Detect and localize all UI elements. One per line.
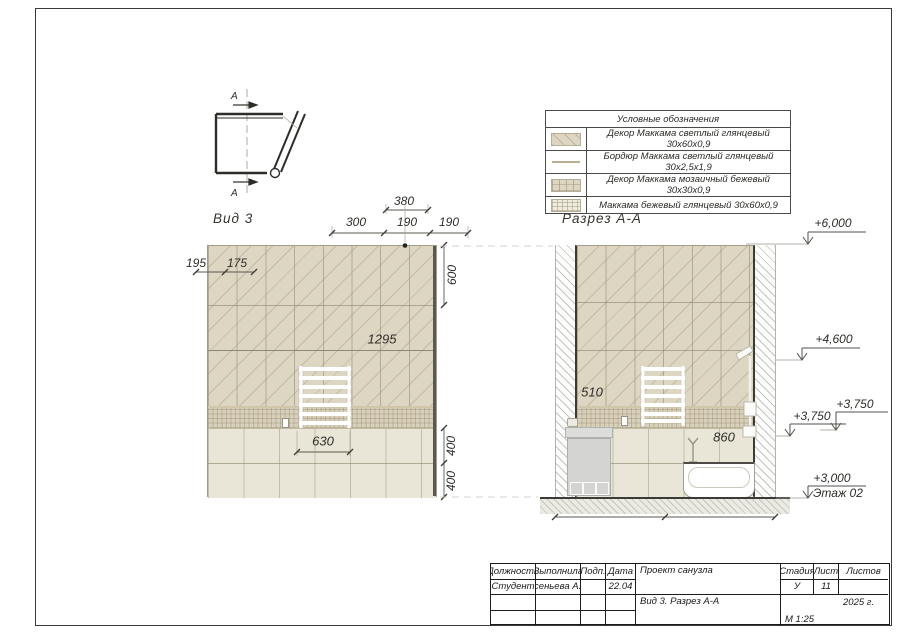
tb-header-role: Должность [491, 564, 536, 580]
tile-joint [577, 302, 753, 303]
dim-label: 600 [445, 265, 459, 285]
bath-faucet [684, 436, 704, 464]
tb-header-sheet: Лист [814, 564, 839, 580]
countertop [565, 427, 613, 438]
view3-elevation [207, 245, 437, 497]
dim-label: 195 [186, 256, 206, 270]
legend-swatch-decor-light [551, 133, 581, 146]
wall-edge [433, 246, 436, 496]
bathtub [683, 462, 755, 498]
legend-swatch-border [552, 157, 580, 168]
section-letter-bottom: А [230, 188, 238, 199]
machine-drawer-panel [570, 482, 609, 495]
level-label: +3,750 [793, 409, 830, 423]
socket-outlet [282, 418, 289, 428]
tb-sign [581, 580, 606, 596]
level-label: +4,600 [815, 332, 852, 346]
plan-sketch: А А [197, 85, 337, 200]
tile-joint [208, 463, 436, 464]
level-label: +3,000 [813, 471, 850, 485]
tb-stage: У [781, 580, 814, 596]
legend-swatch-field [551, 199, 581, 212]
dim-label: 400 [444, 436, 458, 456]
legend-swatch-mosaic [551, 179, 581, 192]
tb-header-sign: Подп. [581, 564, 606, 580]
tile-joint [208, 305, 436, 306]
tb-scale: М 1:25 [785, 614, 814, 625]
dim-label: 175 [227, 256, 247, 270]
tb-header-done-by: Выполнила [536, 564, 581, 580]
tb-project: Проект санузла [636, 564, 781, 595]
tile-joint-1295 [208, 350, 436, 351]
bathtub-rim [688, 467, 750, 488]
socket-outlet [621, 416, 628, 426]
section-title: Разрез А-А [562, 211, 642, 226]
tb-header-sheets: Листов [839, 564, 888, 580]
dim-label: 400 [444, 471, 458, 491]
legend-table: Условные обозначения Декор Маккама светл… [545, 110, 791, 214]
shower-mixer [744, 402, 756, 416]
counter-item [567, 418, 578, 427]
section-letter-top: А [230, 91, 238, 102]
tb-role: Студент [491, 580, 536, 596]
shower-spout [743, 426, 756, 437]
tb-year: 2025 г. [843, 597, 874, 608]
tb-sheets [839, 580, 888, 596]
dim-label: 300 [346, 215, 366, 229]
view3-title: Вид 3 [213, 211, 253, 226]
tb-header-stage: Стадия [781, 564, 814, 580]
drawing-sheet: А А Условные обозначения Декор Маккама с… [0, 0, 900, 633]
floor-slab [540, 497, 790, 514]
legend-title: Условные обозначения [546, 111, 791, 128]
section-wall-right [755, 245, 776, 498]
title-block: Должность Выполнила Подп. Дата Студент А… [490, 563, 890, 625]
tb-sheet: 11 [814, 580, 839, 596]
dim-label: 190 [439, 215, 459, 229]
tb-date: 22.04 [606, 580, 636, 596]
legend-label: Декор Маккама мозаичный бежевый 30х30х0,… [587, 174, 791, 197]
tb-header-date: Дата [606, 564, 636, 580]
legend-row: Декор Маккама мозаичный бежевый 30х30х0,… [546, 174, 791, 197]
dim-label: 510 [581, 385, 603, 400]
dim-label: 630 [312, 434, 334, 449]
legend-title-row: Условные обозначения [546, 111, 791, 128]
towel-rail [639, 363, 687, 429]
legend-row: Декор Маккама светлый глянцевый 30х60х0,… [546, 128, 791, 151]
dim-label: 380 [394, 194, 414, 208]
dim-label: 860 [713, 430, 735, 445]
level-label: +6,000 [814, 216, 851, 230]
legend-label: Декор Маккама светлый глянцевый 30х60х0,… [587, 128, 791, 151]
plan-column [271, 169, 280, 178]
legend-row: Бордюр Маккама светлый глянцевый 30х2,5х… [546, 151, 791, 174]
towel-rail [297, 363, 353, 431]
dim-label: 190 [397, 215, 417, 229]
tb-drawing-title: Вид 3. Разрез А-А [636, 595, 781, 626]
dim-label: 1295 [368, 332, 397, 347]
tb-name: Арсеньева А.Ю. [536, 580, 581, 596]
shower-set [726, 342, 758, 442]
level-label: +3,750 [836, 397, 873, 411]
legend-label: Бордюр Маккама светлый глянцевый 30х2,5х… [587, 151, 791, 174]
floor-label: Этаж 02 [813, 486, 863, 500]
room-outline [216, 111, 305, 173]
